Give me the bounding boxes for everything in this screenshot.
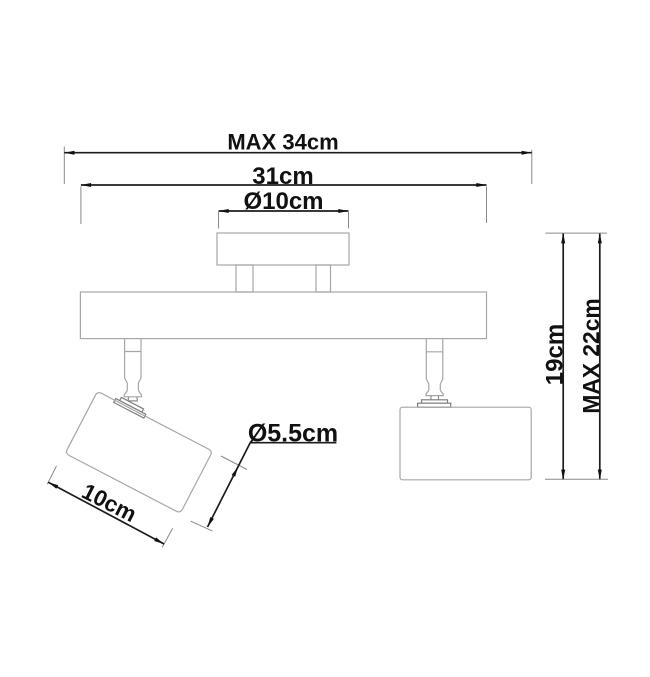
svg-text:MAX 34cm: MAX 34cm [227,130,338,155]
svg-text:Ø5.5cm: Ø5.5cm [248,420,338,448]
svg-text:31cm: 31cm [252,163,313,190]
svg-text:19cm: 19cm [542,324,569,385]
svg-text:Ø10cm: Ø10cm [243,188,323,215]
svg-text:10cm: 10cm [78,479,141,527]
svg-text:MAX 22cm: MAX 22cm [578,298,604,413]
